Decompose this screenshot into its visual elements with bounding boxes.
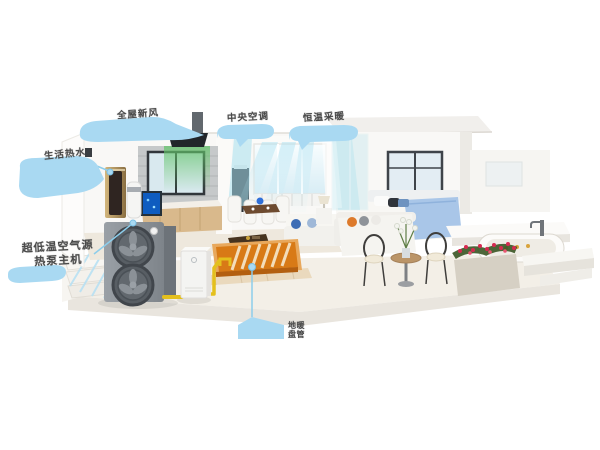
daybed-pillow bbox=[359, 216, 369, 226]
dining-chair bbox=[228, 196, 241, 222]
heat-pump-home-cutaway-scene: 全屋新风 中央空调 恒温采暖 生活热水 超低温空气源 热泵主机 地暖 盘管 bbox=[0, 0, 600, 450]
label-floor-heating-line2: 盘管 bbox=[288, 330, 322, 339]
far-right-window bbox=[486, 162, 522, 186]
pillow bbox=[398, 199, 409, 207]
fresh-air-green-glow bbox=[164, 146, 210, 192]
bathroom bbox=[332, 134, 368, 210]
label-heat-pump: 超低温空气源 热泵主机 bbox=[11, 239, 104, 271]
fan-icon bbox=[113, 265, 153, 305]
sofa-pillow bbox=[291, 219, 301, 229]
fresh-air-duct bbox=[192, 112, 203, 133]
table-lamp bbox=[318, 196, 330, 204]
cutaway-illustration bbox=[0, 0, 600, 450]
label-heat-pump-line1: 超低温空气源 bbox=[21, 239, 94, 255]
pillow bbox=[374, 196, 390, 206]
tub-faucet bbox=[540, 220, 544, 236]
fan-icon bbox=[113, 227, 153, 267]
table-centerpiece bbox=[257, 198, 264, 205]
daybed-pillow bbox=[371, 215, 381, 225]
daybed-pillow bbox=[347, 217, 357, 227]
side-table bbox=[316, 208, 332, 224]
unit-logo-badge bbox=[151, 228, 158, 235]
flower-vase bbox=[402, 248, 410, 258]
label-floor-heating: 地暖 盘管 bbox=[288, 321, 322, 339]
aquarium bbox=[142, 192, 161, 215]
sofa-pillow bbox=[307, 218, 317, 228]
label-floor-heating-line1: 地暖 bbox=[288, 321, 305, 330]
